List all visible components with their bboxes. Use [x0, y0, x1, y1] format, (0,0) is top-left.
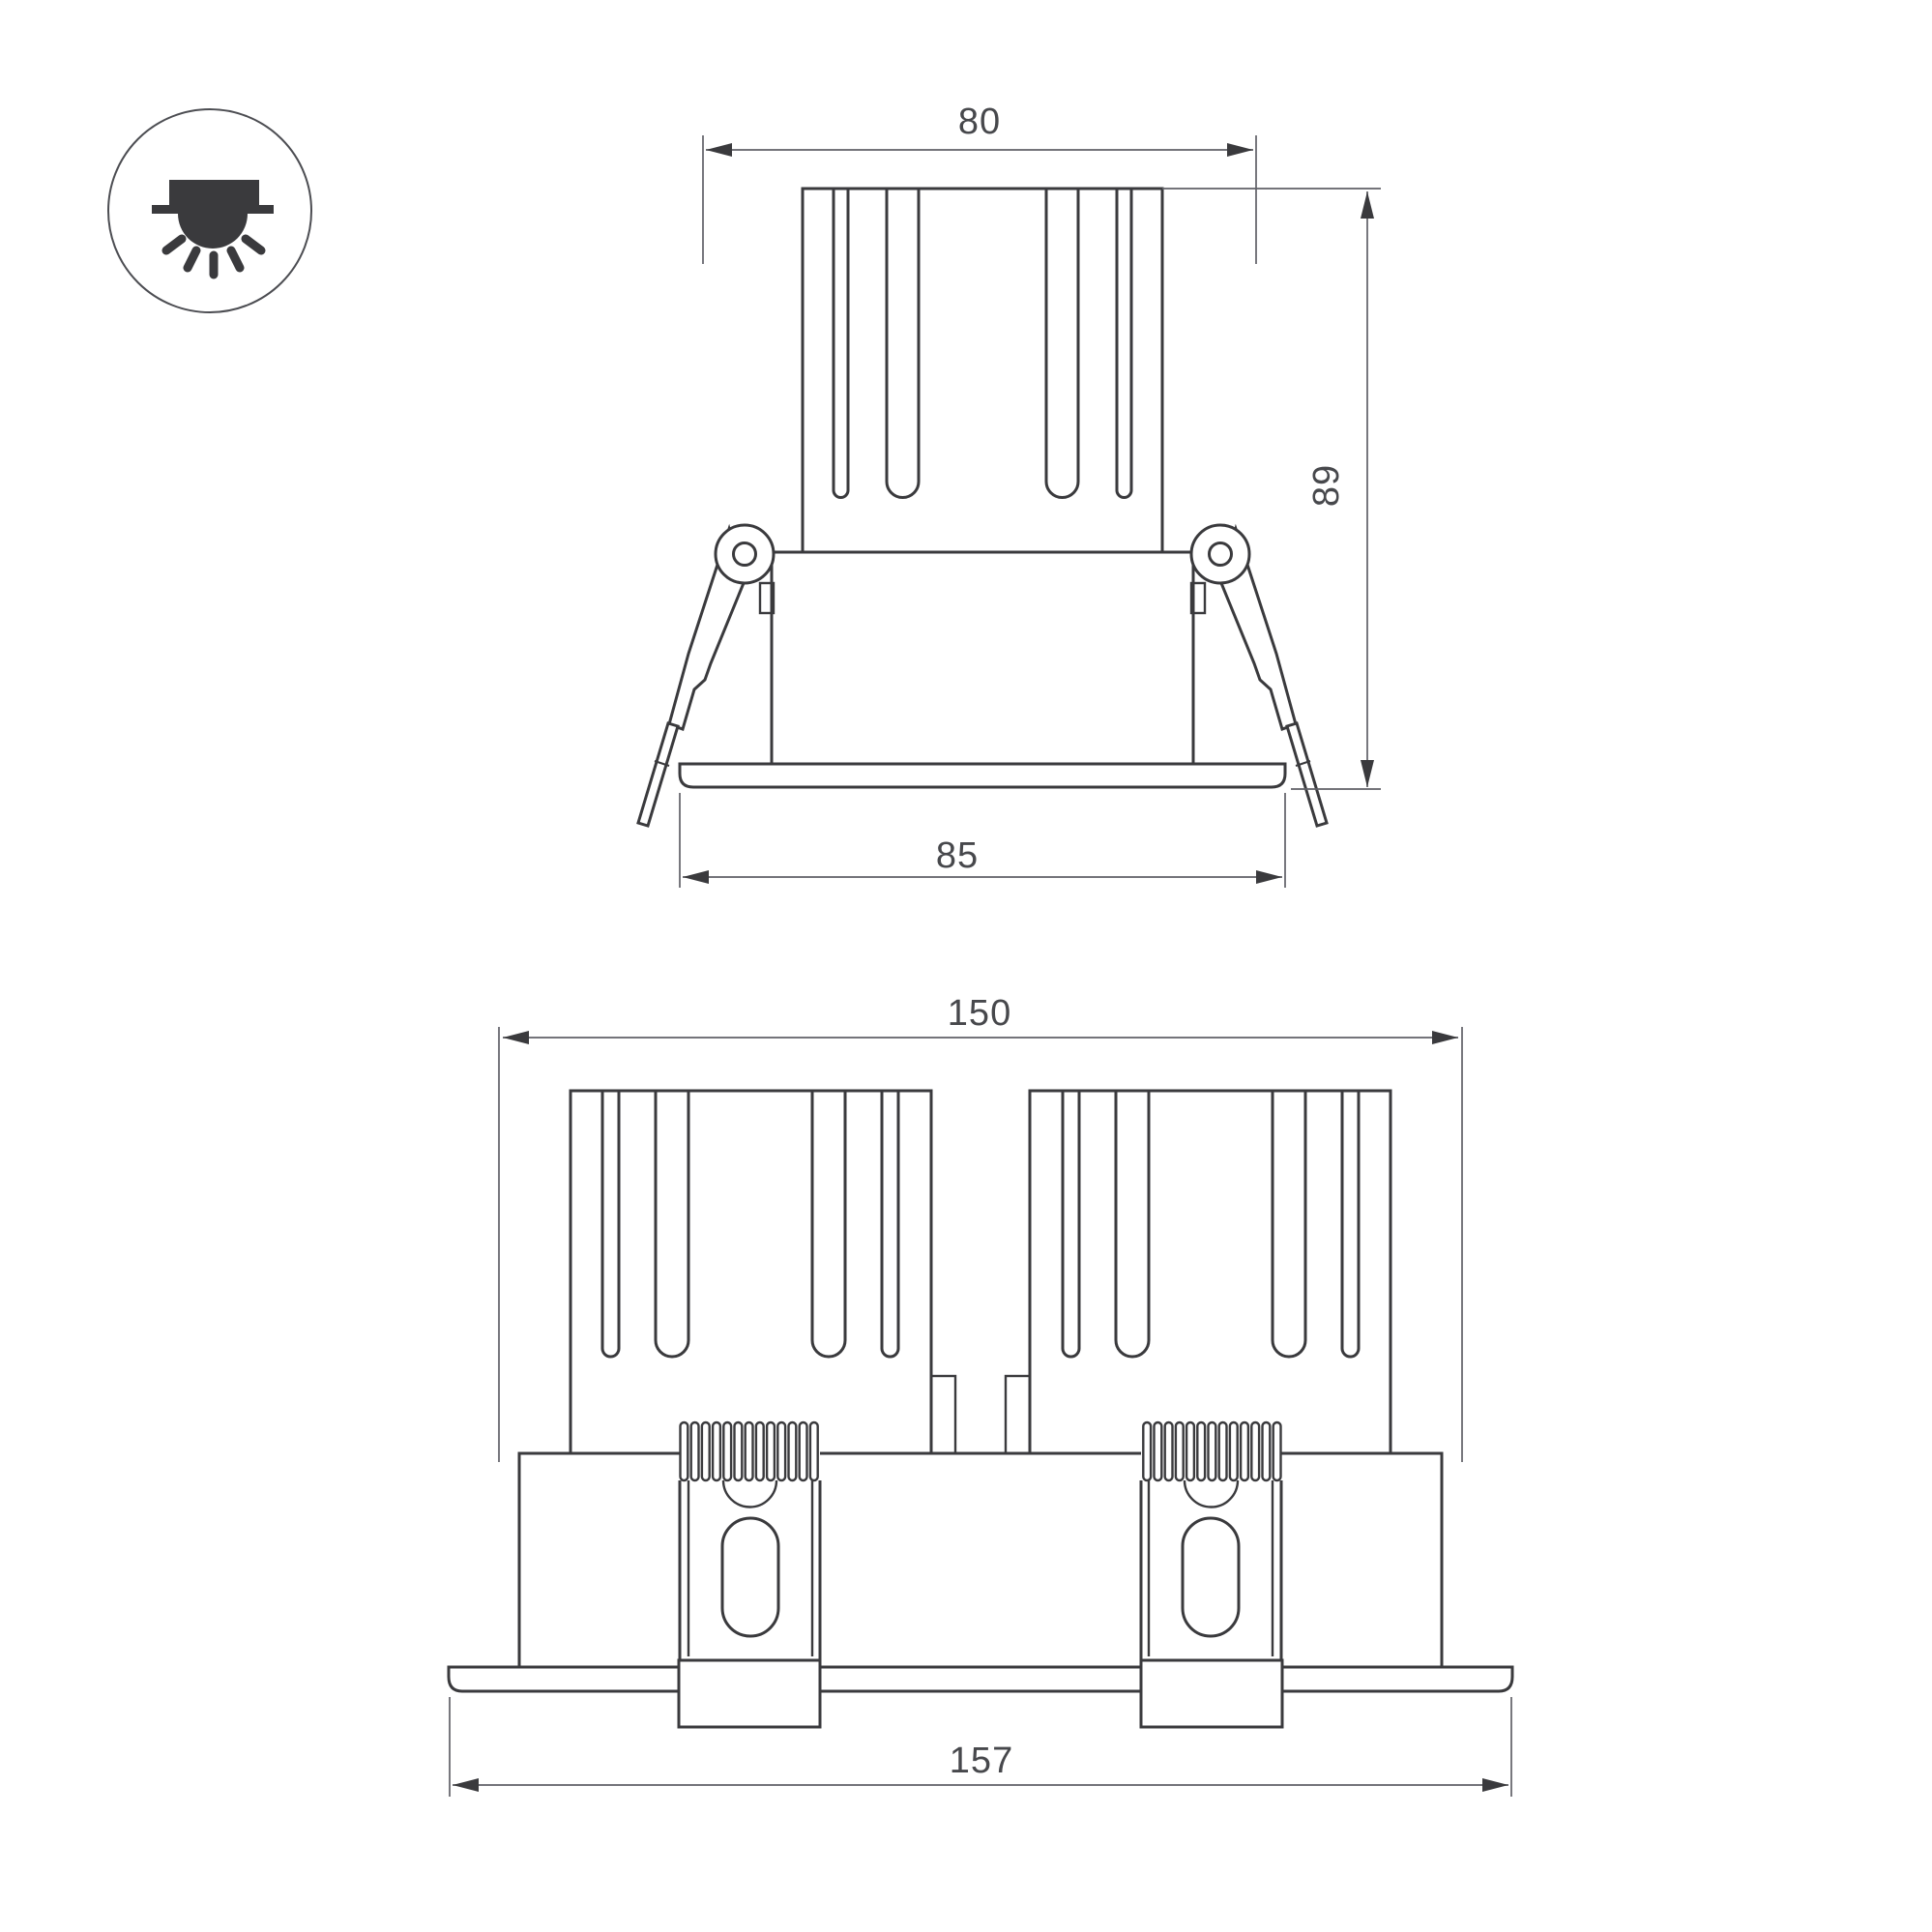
mounting-bracket-left	[679, 1420, 820, 1727]
dimension-85: 85	[680, 793, 1285, 888]
double-trim-flange	[449, 1667, 1512, 1691]
mounting-bracket-right	[1141, 1420, 1282, 1727]
center-step-left	[931, 1376, 955, 1453]
icon-lamp-trim	[152, 205, 274, 214]
dimension-157: 157	[450, 1697, 1511, 1797]
front-view-single: 80 89 85	[638, 102, 1381, 888]
heatsink-block-left	[571, 1091, 931, 1453]
heatsink-block-right	[1030, 1091, 1390, 1453]
housing-body	[772, 552, 1193, 764]
double-housing-body	[519, 1453, 1442, 1667]
recessed-downlight-icon	[108, 109, 311, 312]
dim-150-label: 150	[948, 993, 1011, 1034]
heatsink-body	[803, 189, 1162, 552]
drawing-page: 80 89 85	[0, 0, 1932, 1932]
dim-157-label: 157	[950, 1741, 1013, 1781]
center-step-right	[1006, 1376, 1030, 1453]
technical-drawing-canvas: 80 89 85	[0, 0, 1932, 1932]
front-view-double: 150 157	[449, 993, 1512, 1797]
dim-85-label: 85	[936, 835, 979, 876]
dim-89-label: 89	[1306, 464, 1347, 507]
dimension-89: 89	[1162, 189, 1381, 789]
icon-lamp-body	[169, 180, 259, 206]
trim-flange	[680, 764, 1285, 787]
dim-80-label: 80	[958, 102, 1001, 142]
